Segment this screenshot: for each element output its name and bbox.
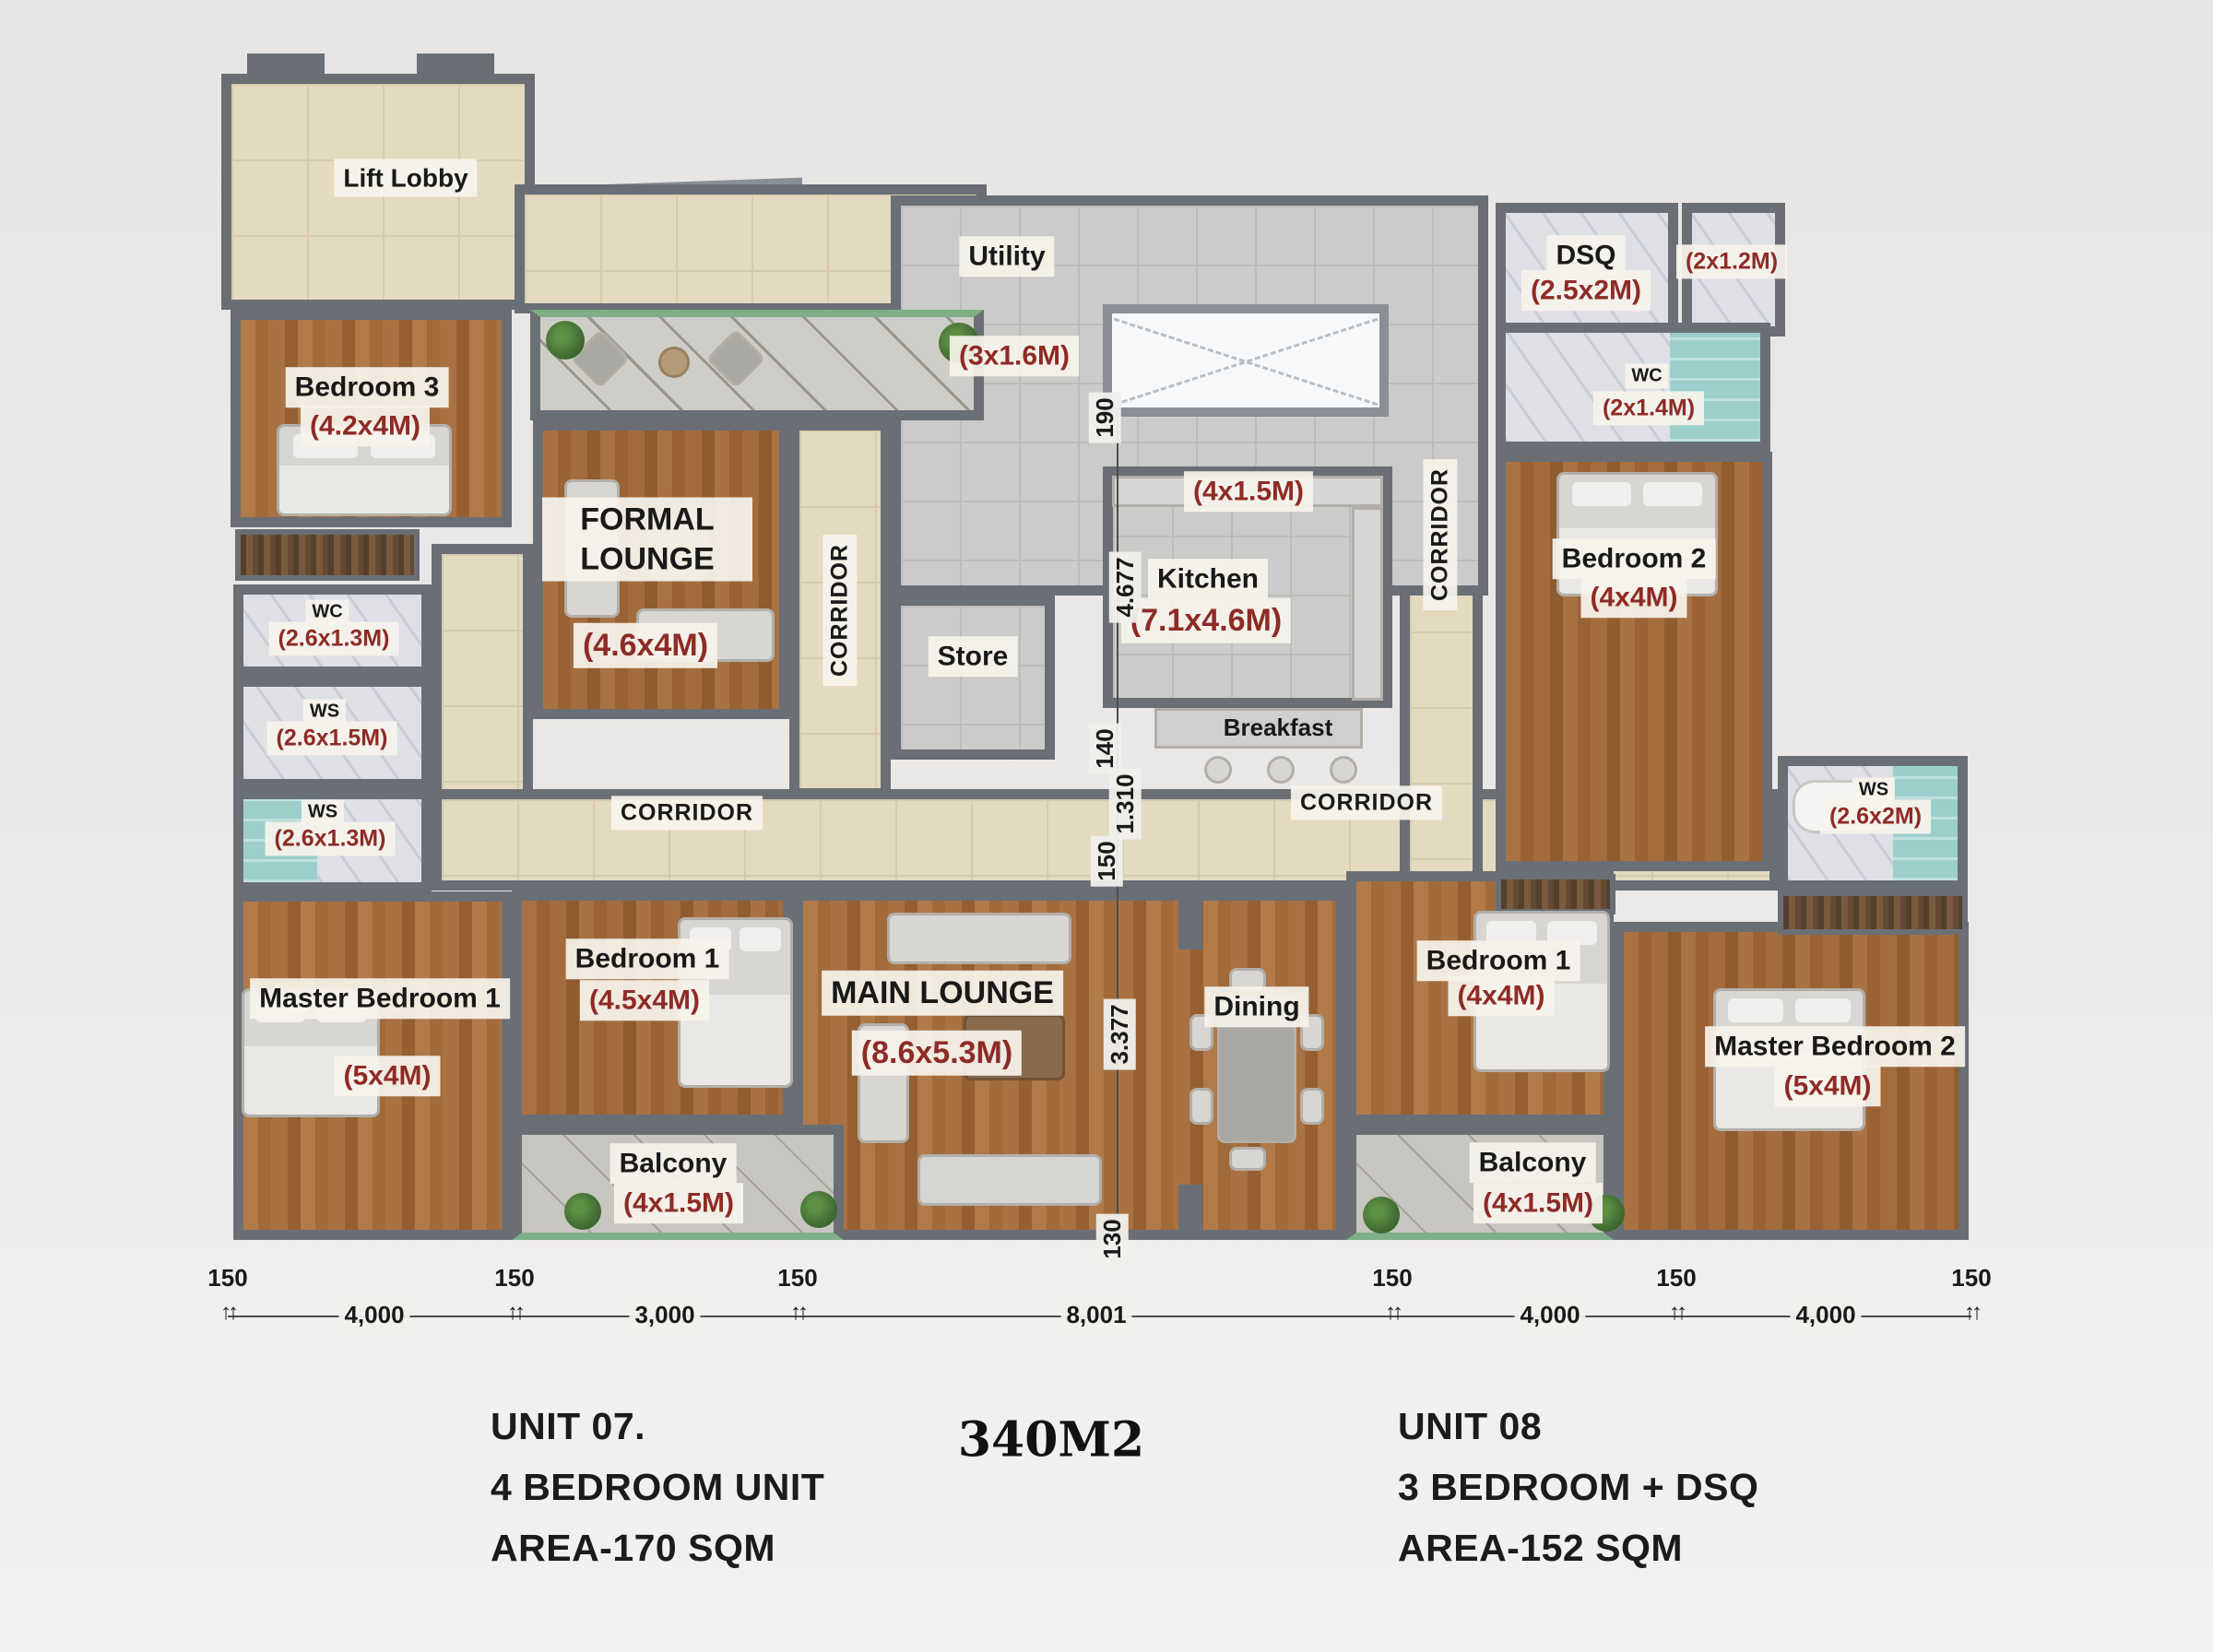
hdim-150-2: 150: [489, 1262, 539, 1294]
unit08-title: UNIT 08: [1398, 1396, 1758, 1457]
dim-utility: (3x1.6M): [950, 336, 1079, 376]
label-bedroom1-u8: Bedroom 1: [1417, 940, 1580, 981]
label-lift-lobby: Lift Lobby: [334, 159, 477, 197]
unit08-area: AREA-152 SQM: [1398, 1517, 1758, 1578]
dimension-tick: ↑↑: [1669, 1300, 1684, 1326]
lift-shaft: [1103, 304, 1389, 417]
dim-balcony-u8: (4x1.5M): [1473, 1183, 1603, 1223]
dim-ws1: (2.6x1.5M): [267, 721, 397, 755]
store-room: [891, 596, 1055, 760]
plant: [564, 1193, 601, 1230]
hdim-4000-2: 4,000: [1514, 1299, 1585, 1331]
plant: [1363, 1197, 1400, 1233]
unit07-area: AREA-170 SQM: [491, 1517, 824, 1578]
pillar: [1178, 891, 1202, 950]
hdim-8001: 8,001: [1060, 1299, 1131, 1331]
unit07-title: UNIT 07.: [491, 1396, 824, 1457]
dim-dsq: (2.5x2M): [1521, 270, 1651, 311]
dimension-tick: ↑↑: [507, 1300, 522, 1326]
label-corridor-vertical-left: CORRIDOR: [822, 535, 857, 686]
dim-bedroom3: (4.2x4M): [301, 406, 430, 446]
unit08-subtitle: 3 BEDROOM + DSQ: [1398, 1457, 1758, 1517]
dim-dsq-bath: (2x1.2M): [1676, 244, 1787, 278]
dim-master-bedroom2: (5x4M): [1774, 1066, 1880, 1106]
plant: [800, 1191, 837, 1228]
dimension-tick: ↑↑: [220, 1300, 235, 1326]
dimension-tick: ↑↑: [1385, 1300, 1400, 1326]
dining-chair: [1229, 1147, 1266, 1171]
dim-formal-lounge: (4.6x4M): [574, 623, 717, 668]
vdim-140: 140: [1089, 723, 1121, 773]
total-area-label: 340M2: [958, 1412, 1144, 1469]
vdim-190: 190: [1089, 392, 1121, 442]
wardrobe: [1778, 891, 1968, 935]
dim-ws2: (2.6x1.3M): [266, 821, 396, 855]
hdim-150-1: 150: [202, 1262, 253, 1294]
wardrobe: [1496, 874, 1615, 914]
sofa: [887, 913, 1071, 964]
plant: [546, 321, 585, 360]
vdim-3377: 3.377: [1104, 998, 1136, 1069]
unit08-summary: UNIT 08 3 BEDROOM + DSQ AREA-152 SQM: [1398, 1396, 1758, 1578]
label-dsq: DSQ: [1546, 235, 1625, 276]
label-bedroom1-u7: Bedroom 1: [566, 938, 729, 979]
label-master-bedroom2: Master Bedroom 2: [1705, 1026, 1965, 1067]
hdim-4000-1: 4,000: [338, 1299, 409, 1331]
floor-plan: Lift Lobby Bedroom 3 (4.2x4M) FORMAL LOU…: [0, 0, 2213, 1652]
label-store: Store: [929, 636, 1018, 677]
label-kitchen: Kitchen: [1148, 559, 1268, 599]
dining-chair: [1189, 1088, 1213, 1125]
dim-balcony-u7: (4x1.5M): [614, 1183, 743, 1223]
dimension-tick: ↑↑: [1964, 1300, 1979, 1326]
terrace-table: [658, 347, 690, 378]
kitchen-counter: [1352, 507, 1383, 701]
wardrobe: [235, 529, 420, 581]
dining-chair: [1300, 1088, 1324, 1125]
label-master-bedroom1: Master Bedroom 1: [250, 978, 510, 1019]
dim-bedroom1-u7: (4.5x4M): [580, 980, 709, 1021]
hdim-150-3: 150: [772, 1262, 822, 1294]
bar-stool: [1204, 756, 1232, 784]
dim-wc1: (2.6x1.3M): [269, 621, 399, 655]
vdim-1310: 1.310: [1109, 768, 1142, 839]
label-wc-u8: WC: [1625, 364, 1668, 389]
label-bedroom3: Bedroom 3: [286, 367, 449, 407]
label-formal-lounge: FORMAL LOUNGE: [542, 498, 752, 582]
hdim-150-6: 150: [1946, 1262, 1996, 1294]
hdim-4000-3: 4,000: [1790, 1299, 1861, 1331]
bar-stool: [1267, 756, 1295, 784]
label-dining: Dining: [1204, 986, 1308, 1027]
sofa: [917, 1154, 1102, 1206]
vdim-130: 130: [1096, 1213, 1129, 1264]
dim-bedroom1-u8: (4x4M): [1448, 975, 1554, 1016]
label-bedroom2: Bedroom 2: [1553, 538, 1716, 579]
hdim-3000: 3,000: [629, 1299, 700, 1331]
label-balcony-u8: Balcony: [1470, 1142, 1596, 1183]
label-balcony-u7: Balcony: [610, 1143, 737, 1184]
hdim-150-5: 150: [1651, 1262, 1701, 1294]
dim-ws-u8: (2.6x2M): [1820, 799, 1931, 833]
hdim-150-4: 150: [1367, 1262, 1417, 1294]
dim-wc-u8: (2x1.4M): [1593, 391, 1704, 425]
label-breakfast: Breakfast: [1214, 710, 1343, 746]
label-corridor-left: CORRIDOR: [611, 796, 763, 830]
dim-kitchen-counter: (4x1.5M): [1184, 471, 1313, 512]
vdim-4677: 4.677: [1109, 551, 1142, 622]
unit07-summary: UNIT 07. 4 BEDROOM UNIT AREA-170 SQM: [491, 1396, 824, 1578]
dimension-tick: ↑↑: [790, 1300, 805, 1326]
vdim-150: 150: [1091, 835, 1123, 886]
pillar: [1178, 1185, 1202, 1240]
bar-stool: [1330, 756, 1357, 784]
label-utility: Utility: [959, 236, 1054, 277]
unit07-subtitle: 4 BEDROOM UNIT: [491, 1457, 824, 1517]
label-corridor-right: CORRIDOR: [1291, 785, 1442, 820]
dim-main-lounge: (8.6x5.3M): [852, 1031, 1022, 1076]
label-main-lounge: MAIN LOUNGE: [822, 971, 1063, 1016]
label-corridor-vertical-right: CORRIDOR: [1423, 459, 1457, 610]
dim-master-bedroom1: (5x4M): [334, 1056, 440, 1096]
dim-bedroom2: (4x4M): [1580, 577, 1686, 618]
dim-kitchen: (7.1x4.6M): [1121, 598, 1291, 643]
